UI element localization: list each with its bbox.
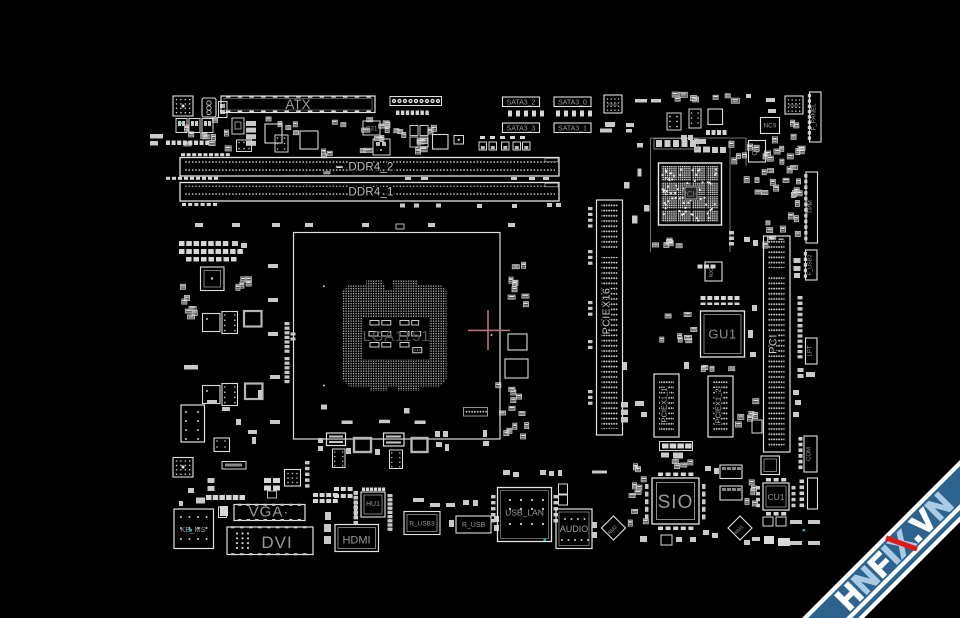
svg-text:F_PANEL: F_PANEL	[811, 103, 818, 131]
svg-text:SATA3_0: SATA3_0	[558, 100, 587, 107]
svg-text:HDMI: HDMI	[342, 535, 370, 547]
svg-text:COM: COM	[807, 447, 813, 461]
svg-text:PCI: PCI	[768, 334, 780, 354]
svg-text:USB_LAN: USB_LAN	[505, 508, 544, 518]
svg-text:PCH: PCH	[682, 190, 699, 199]
svg-text:VGA·: VGA·	[249, 504, 290, 521]
svg-text:DVI: DVI	[261, 533, 292, 552]
svg-text:NM5: NM5	[789, 103, 799, 108]
svg-text:PCIEX16: PCIEX16	[601, 288, 613, 335]
svg-text:LGA1151: LGA1151	[363, 328, 431, 345]
svg-text:NM6: NM6	[608, 102, 618, 107]
svg-text:HU1: HU1	[366, 501, 380, 508]
svg-text:NC9: NC9	[763, 123, 776, 130]
svg-text:PCIEX1_1: PCIEX1_1	[660, 387, 669, 422]
svg-text:AUDIO: AUDIO	[560, 524, 589, 534]
svg-text:PCIEX1_2: PCIEX1_2	[714, 388, 723, 423]
svg-text:GU1: GU1	[708, 327, 736, 342]
svg-text:R_USB3: R_USB3	[409, 521, 435, 528]
svg-text:CU1: CU1	[767, 492, 784, 502]
svg-text:R_USB: R_USB	[462, 522, 486, 529]
svg-text:SATA3_3: SATA3_3	[507, 126, 536, 133]
svg-text:KB_MS: KB_MS	[180, 525, 205, 534]
svg-text:SIO: SIO	[658, 492, 694, 513]
svg-text:TPM: TPM	[807, 200, 814, 214]
svg-text:C31: C31	[366, 126, 378, 133]
svg-text:ATX: ATX	[285, 97, 310, 112]
svg-text:LPT: LPT	[808, 345, 814, 356]
svg-text:SATA3_2: SATA3_2	[507, 100, 536, 107]
svg-text:SATA3_1: SATA3_1	[558, 126, 587, 133]
svg-text:DDR4_1: DDR4_1	[348, 187, 393, 199]
svg-text:F_USB2: F_USB2	[808, 255, 814, 276]
svg-text:DDR4_2: DDR4_2	[348, 162, 393, 174]
